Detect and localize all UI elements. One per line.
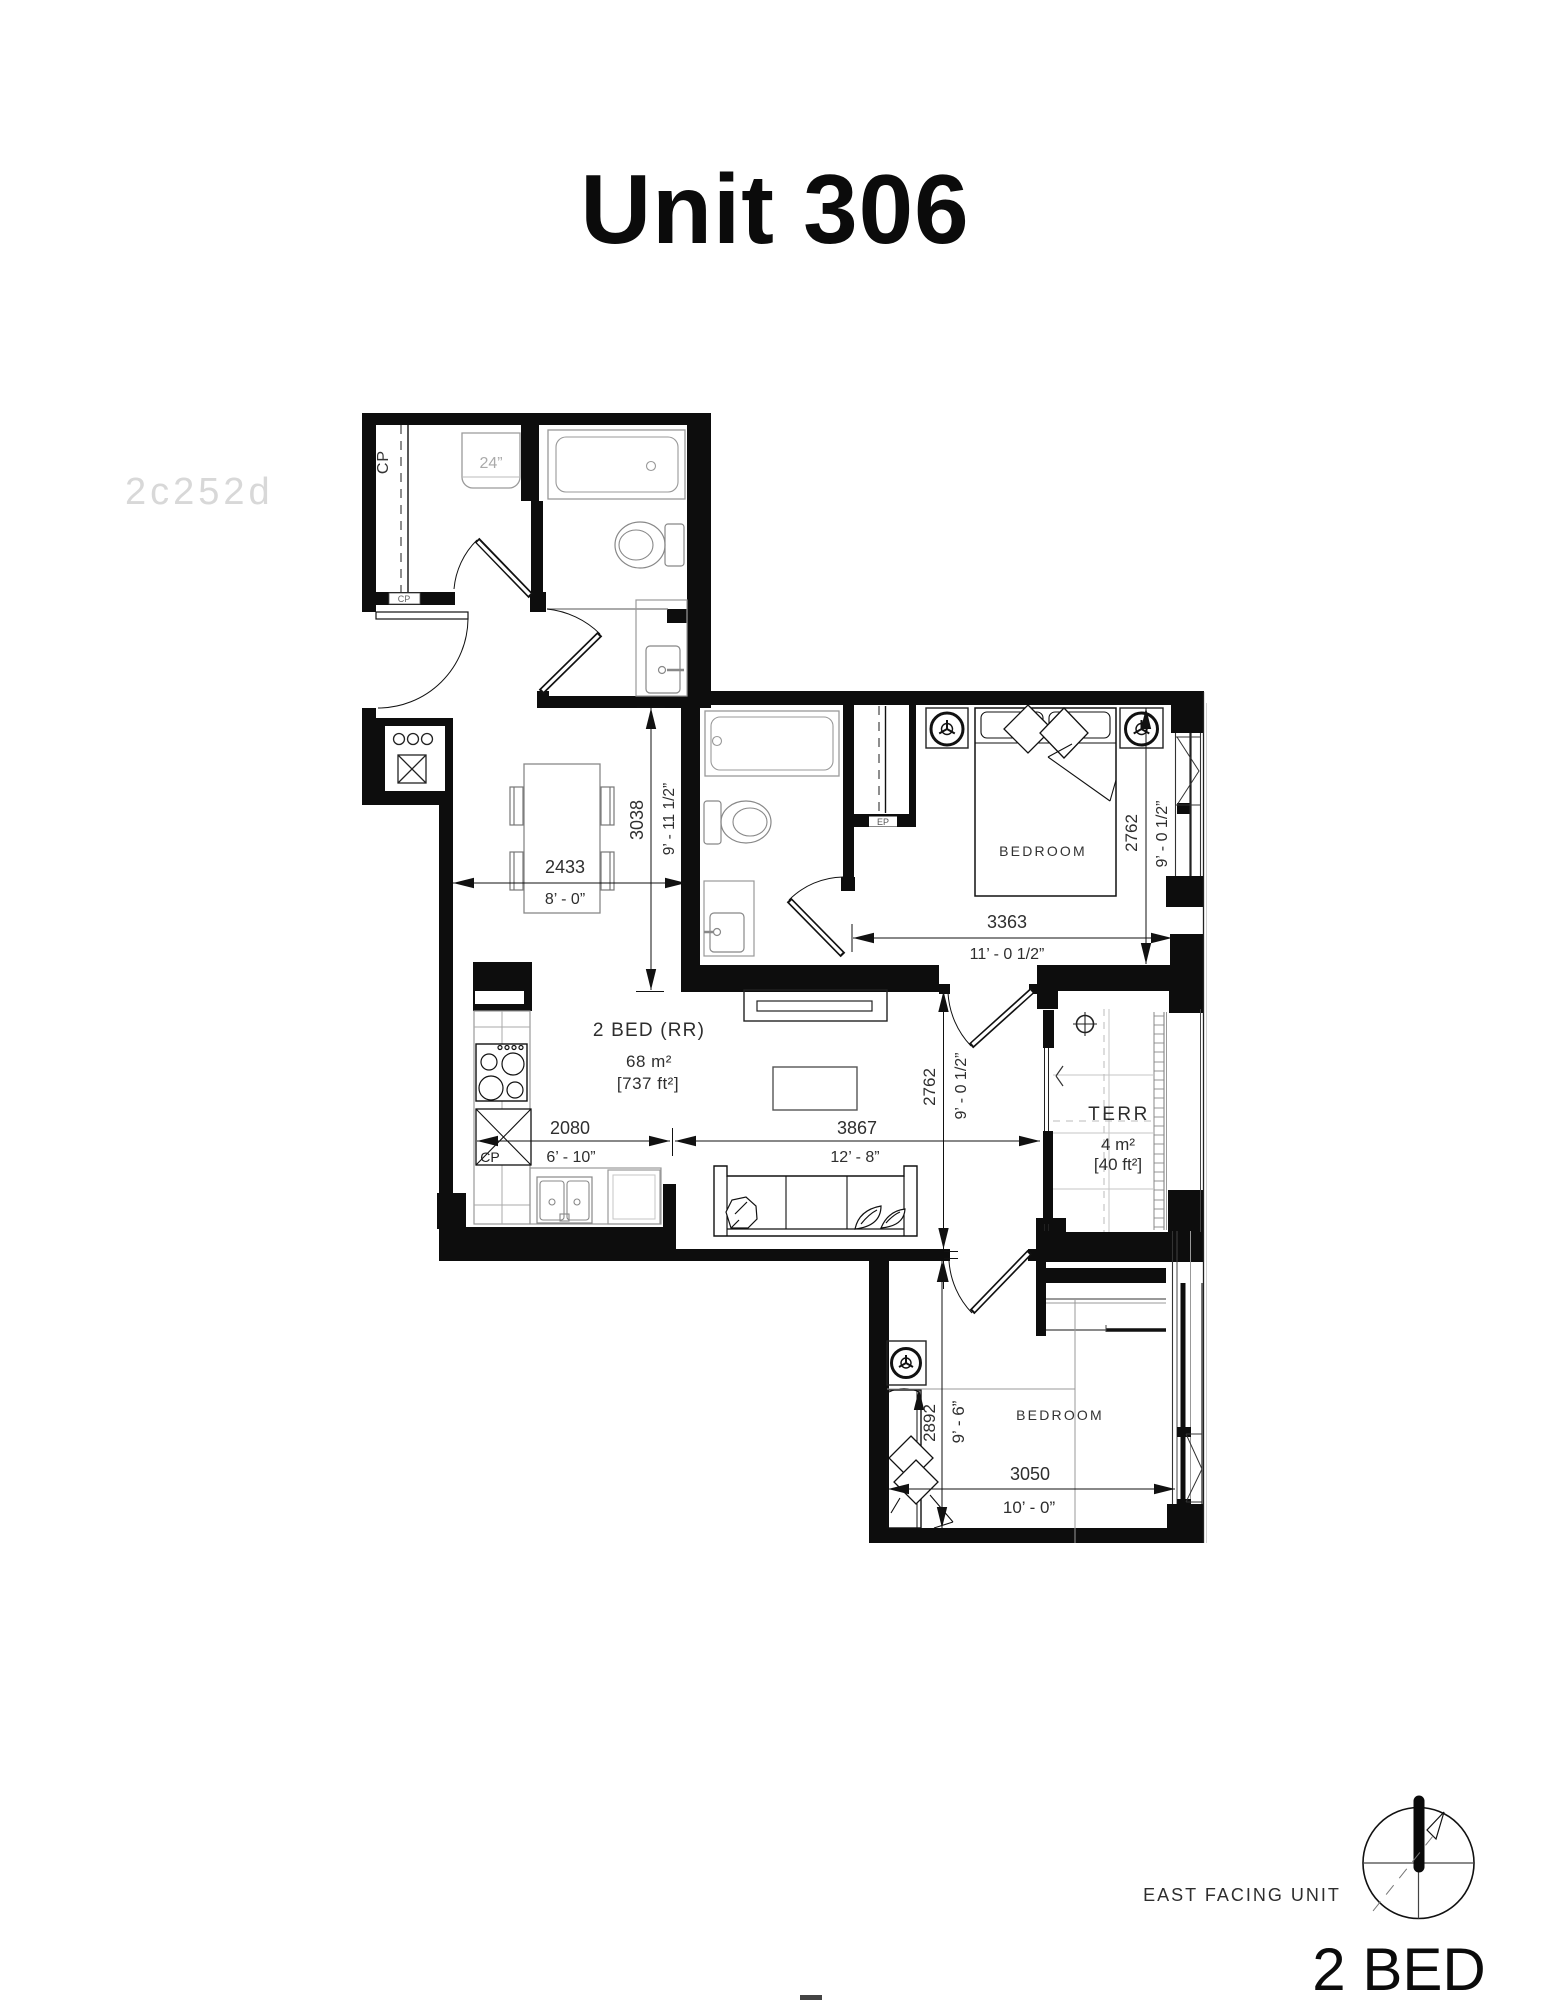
svg-text:9’ - 11 1/2”: 9’ - 11 1/2” (661, 783, 678, 855)
svg-text:2892: 2892 (920, 1404, 939, 1442)
svg-text:12’ - 8”: 12’ - 8” (830, 1149, 879, 1166)
svg-text:3363: 3363 (987, 912, 1027, 932)
svg-text:2c252d: 2c252d (125, 471, 274, 513)
svg-text:9’ - 0 1/2”: 9’ - 0 1/2” (1154, 801, 1171, 868)
svg-text:2 BED: 2 BED (1312, 1936, 1485, 2000)
svg-text:24”: 24” (479, 455, 502, 472)
svg-text:3867: 3867 (837, 1118, 877, 1138)
svg-text:2 BED (RR): 2 BED (RR) (593, 1020, 705, 1041)
svg-text:Unit 306: Unit 306 (580, 154, 969, 264)
svg-text:2762: 2762 (920, 1068, 939, 1106)
svg-text:2080: 2080 (550, 1118, 590, 1138)
svg-text:CP: CP (480, 1149, 499, 1165)
svg-text:68 m²: 68 m² (626, 1052, 672, 1071)
svg-text:CP: CP (375, 450, 392, 474)
svg-text:9’ - 0 1/2”: 9’ - 0 1/2” (953, 1053, 970, 1120)
svg-text:[40 ft²]: [40 ft²] (1094, 1155, 1142, 1174)
svg-text:9’ - 6”: 9’ - 6” (949, 1400, 968, 1443)
svg-text:4 m²: 4 m² (1101, 1135, 1135, 1154)
svg-text:BEDROOM: BEDROOM (999, 843, 1087, 859)
svg-text:EAST FACING UNIT: EAST FACING UNIT (1143, 1885, 1341, 1905)
svg-text:6’ - 10”: 6’ - 10” (546, 1149, 595, 1166)
svg-text:3050: 3050 (1010, 1464, 1050, 1484)
svg-text:CP: CP (398, 594, 411, 604)
svg-text:BEDROOM: BEDROOM (1016, 1407, 1104, 1423)
svg-text:2762: 2762 (1122, 814, 1141, 852)
svg-text:11’ - 0 1/2”: 11’ - 0 1/2” (970, 946, 1045, 963)
svg-text:8’ - 0”: 8’ - 0” (545, 891, 585, 908)
svg-text:2433: 2433 (545, 857, 585, 877)
svg-text:[737 ft²]: [737 ft²] (617, 1074, 679, 1093)
svg-text:10’ - 0”: 10’ - 0” (1003, 1498, 1056, 1517)
svg-text:TERR: TERR (1088, 1104, 1150, 1125)
svg-text:3038: 3038 (627, 800, 647, 840)
svg-text:EP: EP (877, 817, 889, 827)
